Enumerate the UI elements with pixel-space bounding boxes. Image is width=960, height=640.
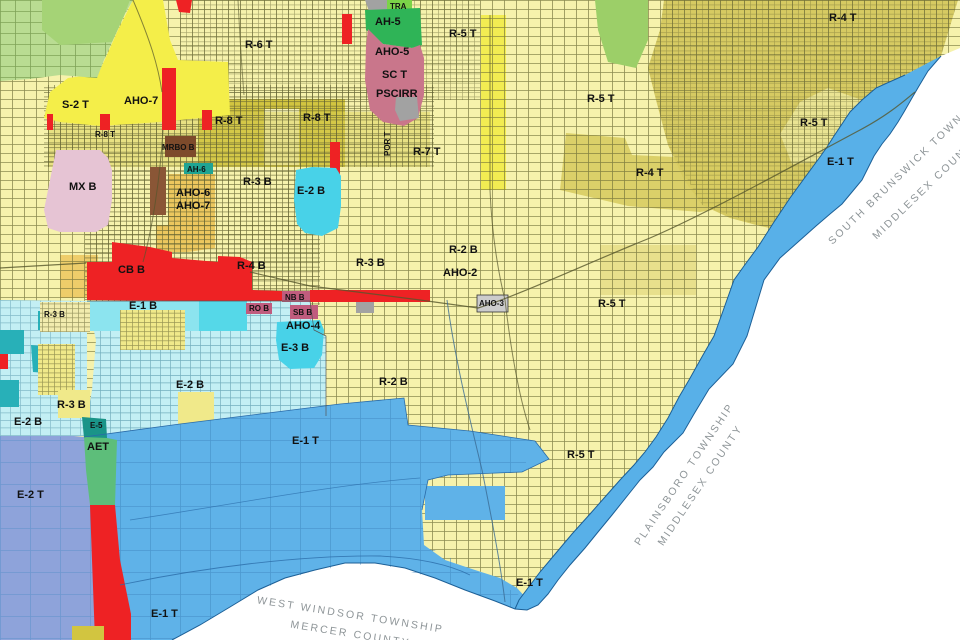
svg-text:E-2 B: E-2 B — [14, 416, 42, 428]
svg-text:TRA: TRA — [390, 2, 407, 11]
svg-text:R-5 T: R-5 T — [800, 117, 828, 129]
svg-text:MX B: MX B — [69, 181, 97, 193]
svg-text:R-4 B: R-4 B — [237, 260, 266, 272]
svg-text:R-3 B: R-3 B — [356, 257, 385, 269]
svg-text:R-2 B: R-2 B — [449, 244, 478, 256]
svg-text:POR T: POR T — [383, 131, 392, 156]
svg-text:E-1 T: E-1 T — [292, 435, 319, 447]
svg-text:E-5: E-5 — [90, 421, 103, 430]
svg-text:AHO-7: AHO-7 — [176, 200, 210, 212]
svg-text:AHO-7: AHO-7 — [124, 95, 158, 107]
svg-text:R-4 T: R-4 T — [636, 167, 664, 179]
svg-text:E-1 B: E-1 B — [129, 300, 157, 312]
svg-text:R-8 T: R-8 T — [215, 115, 243, 127]
svg-text:MRBO B: MRBO B — [162, 143, 195, 152]
svg-text:R-3 B: R-3 B — [243, 176, 272, 188]
svg-text:RO B: RO B — [249, 304, 269, 313]
svg-text:E-1 T: E-1 T — [827, 156, 854, 168]
svg-text:R-8 T: R-8 T — [303, 112, 331, 124]
svg-text:R-5 T: R-5 T — [567, 449, 595, 461]
svg-text:E-1 T: E-1 T — [151, 608, 178, 620]
svg-text:CB B: CB B — [118, 264, 145, 276]
svg-text:NB B: NB B — [285, 293, 305, 302]
svg-text:E-2 T: E-2 T — [17, 489, 44, 501]
svg-text:R-5 T: R-5 T — [587, 93, 615, 105]
svg-text:R-7 T: R-7 T — [413, 146, 441, 158]
svg-text:R-6 T: R-6 T — [245, 39, 273, 51]
svg-text:E-2 B: E-2 B — [176, 379, 204, 391]
svg-text:SB B: SB B — [293, 308, 312, 317]
svg-text:R-5 T: R-5 T — [598, 298, 626, 310]
svg-text:AH-6: AH-6 — [187, 165, 206, 174]
svg-text:AHO-4: AHO-4 — [286, 320, 321, 332]
svg-text:S-2 T: S-2 T — [62, 99, 89, 111]
svg-text:AH-5: AH-5 — [375, 16, 401, 28]
svg-text:E-2 B: E-2 B — [297, 185, 325, 197]
svg-text:E-1 T: E-1 T — [516, 577, 543, 589]
svg-text:R-5 T: R-5 T — [449, 28, 477, 40]
svg-text:AET: AET — [87, 441, 109, 453]
svg-text:AHO-3: AHO-3 — [479, 299, 504, 308]
svg-text:PSCIRR: PSCIRR — [376, 88, 418, 100]
svg-text:AHO-2: AHO-2 — [443, 267, 477, 279]
svg-text:R-2 B: R-2 B — [379, 376, 408, 388]
svg-text:R-4 T: R-4 T — [829, 12, 857, 24]
svg-text:R-8 T: R-8 T — [95, 130, 115, 139]
svg-text:SC T: SC T — [382, 69, 407, 81]
svg-text:R-3 B: R-3 B — [57, 399, 86, 411]
svg-text:AHO-5: AHO-5 — [375, 46, 409, 58]
svg-text:R-3 B: R-3 B — [44, 310, 65, 319]
svg-text:AHO-6: AHO-6 — [176, 187, 210, 199]
svg-text:E-3 B: E-3 B — [281, 342, 309, 354]
